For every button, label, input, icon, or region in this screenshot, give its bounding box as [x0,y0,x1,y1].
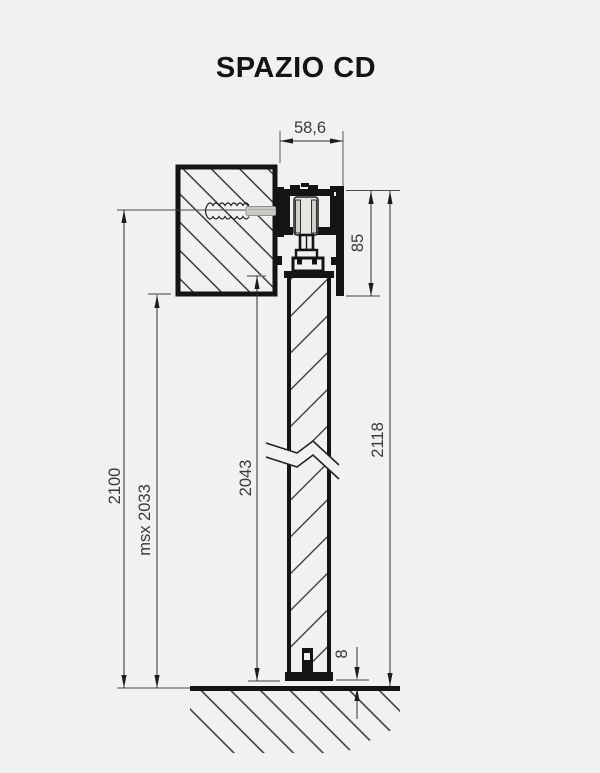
floor-line [190,686,400,691]
track-bump-left [290,185,300,190]
technical-drawing-page: SPAZIO CD [0,0,600,773]
wall-section [178,167,282,294]
floor-guide-slot [304,653,310,660]
clamp-screw-right [312,260,317,265]
dim-label-floor-gap: 8 [333,649,351,658]
track-flange-left [276,227,293,235]
dim-label-door-height: 2043 [237,460,255,497]
dim-label-header-height: 85 [349,234,367,252]
track-center-cap [301,183,309,187]
clamp-screw-left [297,260,302,265]
roller-plate-right [312,200,317,233]
wall-hatch [179,168,274,293]
door-edge-right [327,278,331,681]
wall-plug [246,207,276,216]
track-top-plate [284,189,334,196]
door-top-rail [284,271,334,278]
spazio-cd-section-drawing: SPAZIO CD [0,0,600,773]
track-flange-right [317,227,338,235]
wall-fastener-nub [277,256,282,265]
dim-label-clear-height: 2100 [106,468,124,505]
dim-label-overall-height: 2118 [369,422,387,457]
floor-guide [302,648,313,674]
door-edge-left [287,278,291,681]
track-bump-right [308,185,318,190]
door-hatch [291,278,327,672]
dim-label-track-width: 58,6 [294,119,326,137]
track-wall-left [284,196,290,229]
drawing-title: SPAZIO CD [216,52,376,84]
cover-fascia [336,186,344,296]
roller-plate-left [296,200,301,233]
dim-label-max-height: msx 2033 [136,484,154,556]
fascia-fastener-nub [331,257,336,265]
